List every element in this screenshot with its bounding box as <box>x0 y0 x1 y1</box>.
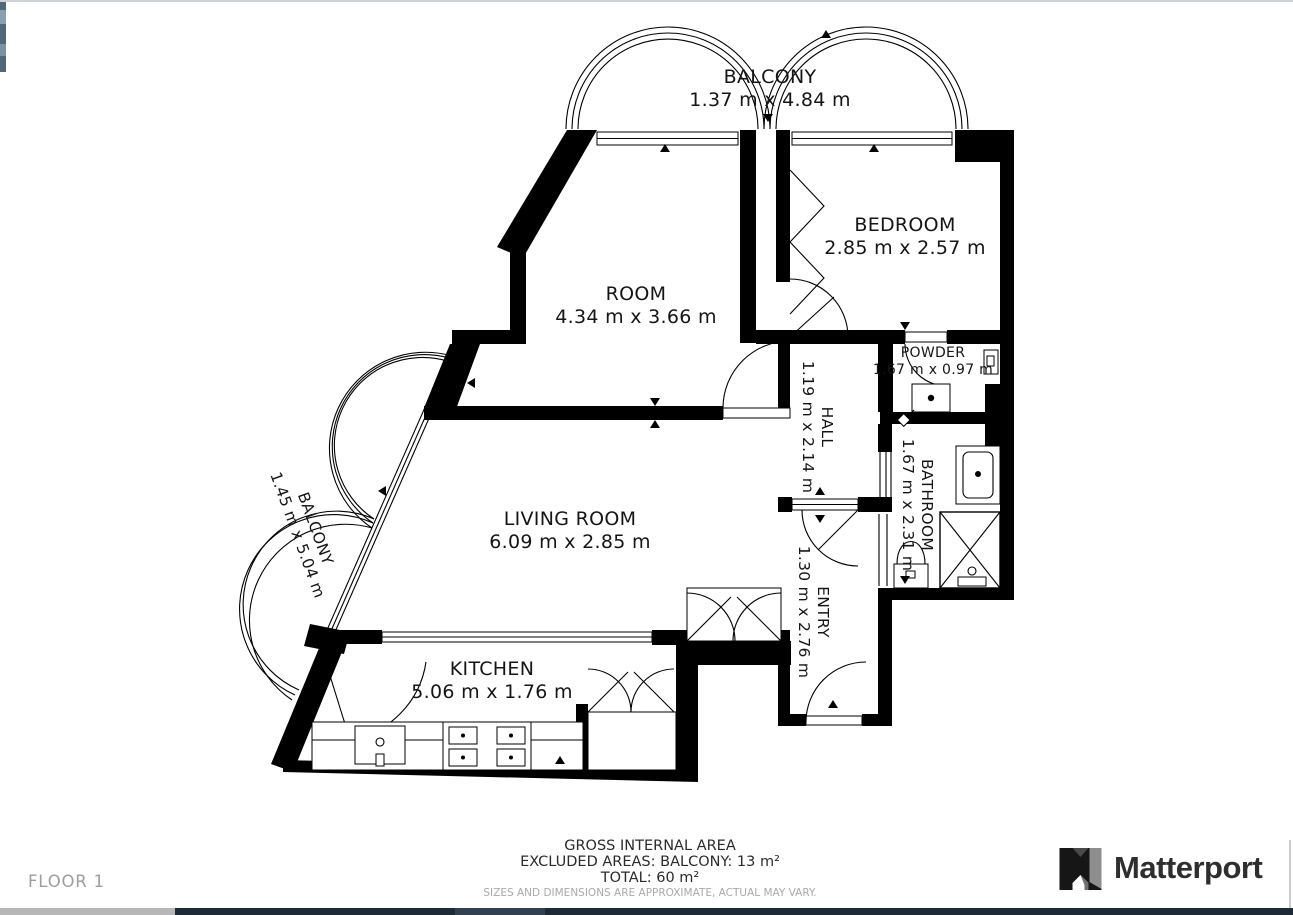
floor-label: FLOOR 1 <box>28 872 105 891</box>
room-name: POWDER <box>873 345 993 362</box>
room-name: ROOM <box>555 283 717 306</box>
room-dims: 1.67 m x 2.31 m <box>898 439 917 572</box>
right-border-line <box>1289 840 1291 908</box>
room-name: KITCHEN <box>411 658 573 681</box>
floorplan-canvas <box>0 0 1293 915</box>
footer-total-area: TOTAL: 60 m² <box>601 870 700 886</box>
footer-disclaimer: SIZES AND DIMENSIONS ARE APPROXIMATE, AC… <box>483 887 816 899</box>
room-label-balcony-top: BALCONY 1.37 m x 4.84 m <box>689 66 851 112</box>
room-name: BEDROOM <box>824 214 986 237</box>
room-label-bathroom: BATHROOM 1.67 m x 2.31 m <box>898 439 936 572</box>
room-dims: 4.34 m x 3.66 m <box>555 306 717 329</box>
room-name: ENTRY <box>813 546 832 679</box>
room-dims: 1.30 m x 2.76 m <box>794 546 813 679</box>
room-label-kitchen: KITCHEN 5.06 m x 1.76 m <box>411 658 573 704</box>
room-label-living-room: LIVING ROOM 6.09 m x 2.85 m <box>489 508 651 554</box>
room-name: HALL <box>817 361 836 494</box>
room-label-entry: ENTRY 1.30 m x 2.76 m <box>794 546 832 679</box>
left-scrollbar-fragment[interactable] <box>0 2 6 72</box>
room-label-powder: POWDER 1.67 m x 0.97 m <box>873 345 993 379</box>
floorplan-page: BALCONY 1.37 m x 4.84 m BEDROOM 2.85 m x… <box>0 0 1293 915</box>
room-dims: 1.67 m x 0.97 m <box>873 362 993 379</box>
room-name: LIVING ROOM <box>489 508 651 531</box>
room-dims: 6.09 m x 2.85 m <box>489 531 651 554</box>
matterport-logo: Matterport <box>1058 845 1262 891</box>
balcony-left-railing <box>240 352 452 700</box>
scrollbar-segment <box>455 908 545 915</box>
room-name: BATHROOM <box>917 439 936 572</box>
room-name: BALCONY <box>689 66 851 89</box>
footer-gross-internal-area: GROSS INTERNAL AREA <box>564 838 736 854</box>
room-label-room: ROOM 4.34 m x 3.66 m <box>555 283 717 329</box>
room-dims: 1.37 m x 4.84 m <box>689 89 851 112</box>
matterport-m-icon <box>1058 845 1103 891</box>
room-dims: 1.19 m x 2.14 m <box>798 361 817 494</box>
room-dims: 2.85 m x 2.57 m <box>824 237 986 260</box>
kitchen-fixtures <box>312 722 583 770</box>
horizontal-scrollbar[interactable] <box>0 908 1293 915</box>
top-border-line <box>0 0 1293 2</box>
room-label-bedroom: BEDROOM 2.85 m x 2.57 m <box>824 214 986 260</box>
matterport-wordmark: Matterport <box>1114 850 1262 886</box>
scrollbar-thumb[interactable] <box>175 908 1293 915</box>
room-dims: 5.06 m x 1.76 m <box>411 681 573 704</box>
footer-excluded-areas: EXCLUDED AREAS: BALCONY: 13 m² <box>520 854 780 870</box>
room-label-hall: HALL 1.19 m x 2.14 m <box>798 361 836 494</box>
